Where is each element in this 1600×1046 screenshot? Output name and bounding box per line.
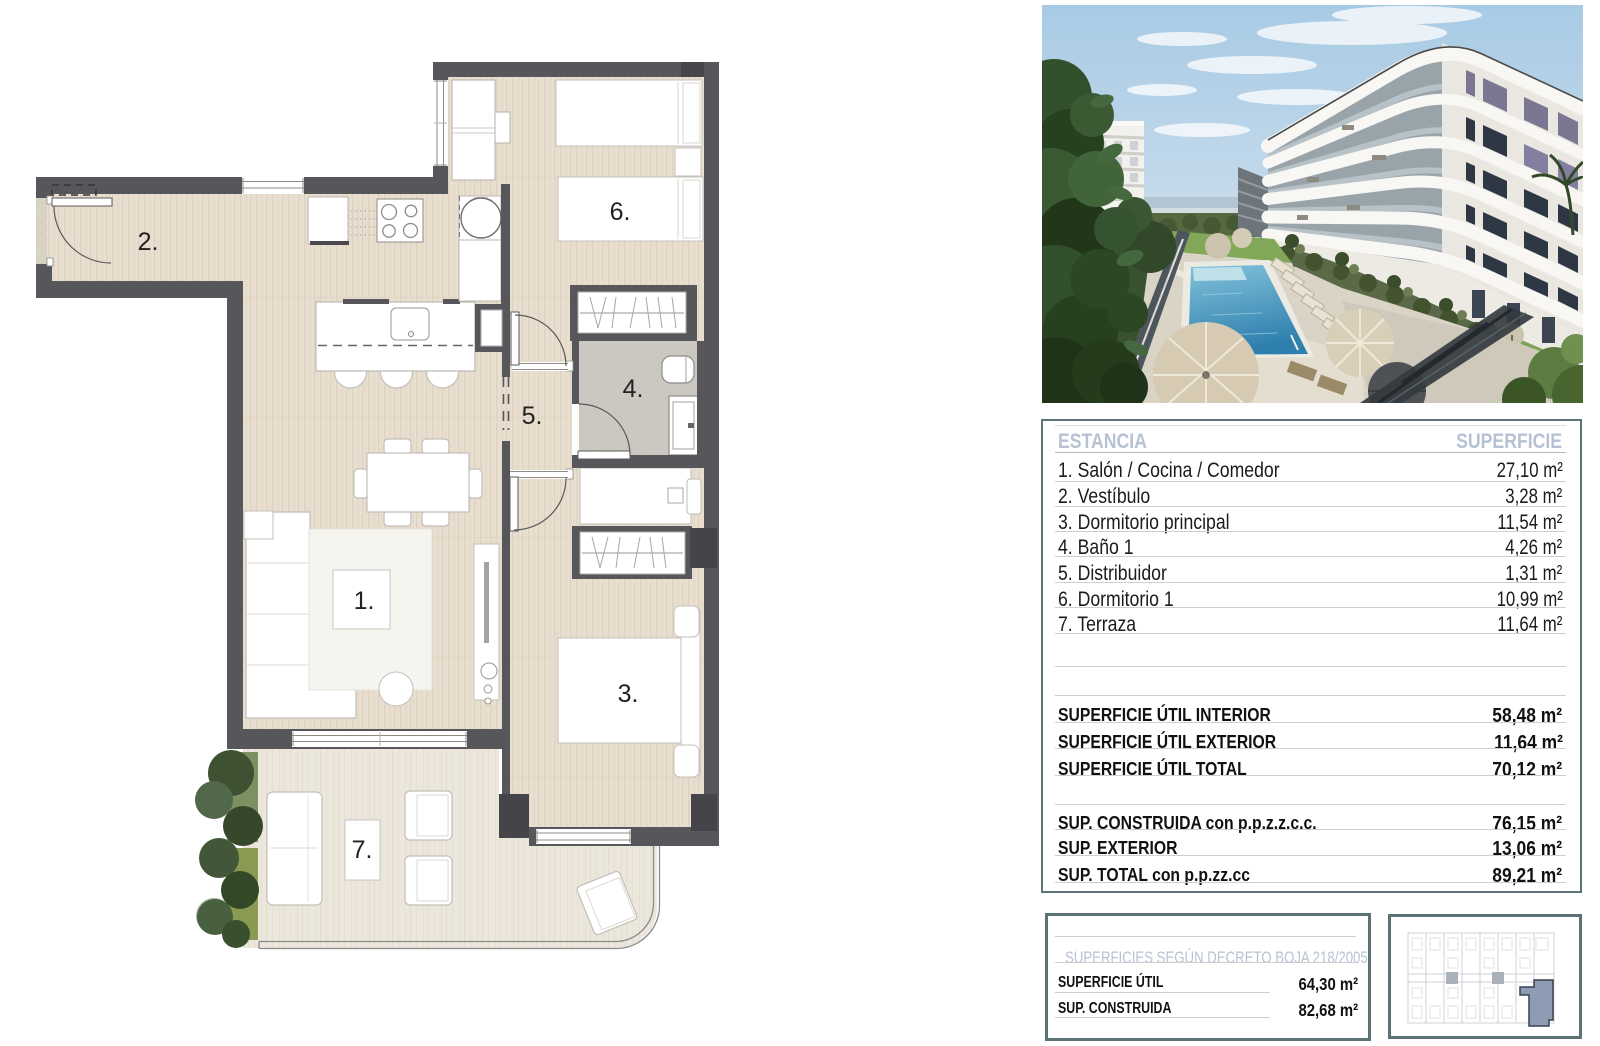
svg-text:3.: 3. — [618, 680, 639, 708]
svg-text:6.: 6. — [610, 198, 631, 226]
svg-text:1.: 1. — [354, 587, 375, 615]
svg-text:5.: 5. — [522, 402, 543, 430]
svg-text:4.: 4. — [623, 375, 644, 403]
svg-text:7.: 7. — [352, 836, 373, 864]
svg-text:2.: 2. — [138, 228, 159, 256]
